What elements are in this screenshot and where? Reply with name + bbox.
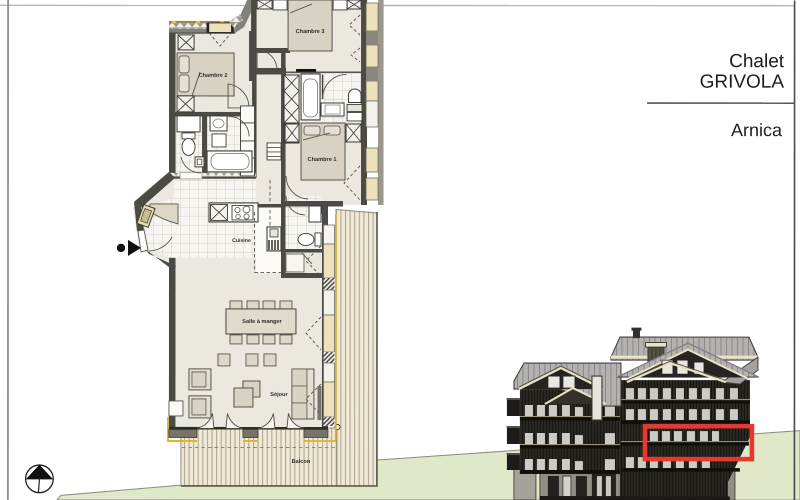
svg-text:Cuisine: Cuisine [232, 238, 251, 244]
svg-text:Balcon: Balcon [292, 459, 311, 465]
svg-text:Chambre 1: Chambre 1 [308, 157, 337, 163]
svg-text:GRIVOLA: GRIVOLA [700, 72, 785, 93]
svg-text:Salle à manger: Salle à manger [242, 319, 282, 325]
svg-text:Séjour: Séjour [270, 392, 288, 398]
svg-text:Chalet: Chalet [729, 51, 785, 72]
svg-text:Chambre 2: Chambre 2 [199, 73, 228, 79]
svg-text:Arnica: Arnica [731, 120, 783, 140]
svg-text:Chambre 3: Chambre 3 [296, 29, 325, 35]
